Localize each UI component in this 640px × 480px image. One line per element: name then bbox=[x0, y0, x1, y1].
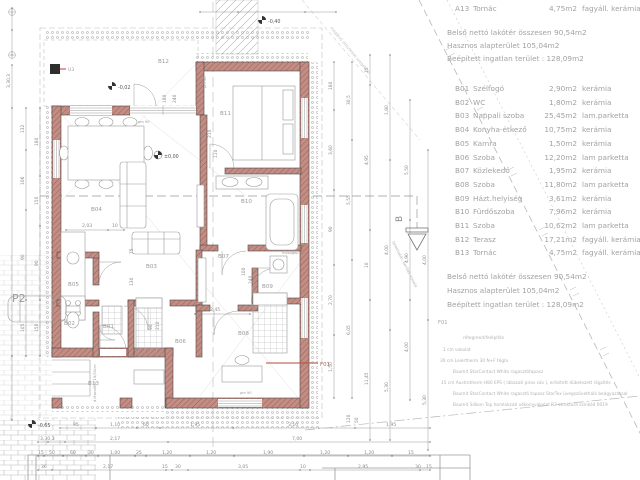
desk-b13 bbox=[134, 370, 164, 384]
svg-text:90: 90 bbox=[20, 254, 26, 260]
svg-text:1,80: 1,80 bbox=[384, 105, 390, 115]
svg-text:60: 60 bbox=[143, 422, 149, 428]
wall-spec-layer: 1 cm vakolat bbox=[443, 348, 471, 353]
svg-text:5,50: 5,50 bbox=[404, 165, 410, 175]
legend-row: B03Nappali szoba25,45m2lam.parketta bbox=[455, 111, 640, 120]
svg-text:105: 105 bbox=[20, 323, 26, 332]
svg-text:180: 180 bbox=[34, 137, 40, 146]
wall-spec-code: F01 bbox=[438, 320, 448, 326]
svg-text:180: 180 bbox=[162, 94, 168, 103]
parapet-label-3: pm 90 bbox=[240, 391, 252, 395]
svg-text:2,03: 2,03 bbox=[82, 223, 92, 229]
svg-text:4,95: 4,95 bbox=[364, 155, 370, 165]
svg-text:1,95: 1,95 bbox=[386, 422, 396, 428]
svg-text:15: 15 bbox=[162, 464, 168, 470]
wc-tank bbox=[66, 306, 80, 312]
legend-row: B06Szoba12,20m2lam parketta bbox=[455, 153, 640, 162]
svg-text:4,00: 4,00 bbox=[384, 245, 390, 255]
svg-text:75: 75 bbox=[129, 248, 135, 254]
room-label-b03: B03 bbox=[146, 264, 157, 270]
sofa-2 bbox=[132, 232, 180, 254]
hall-wardrobe bbox=[198, 258, 206, 302]
room-finish: fagyáll. kerámia bbox=[582, 4, 640, 13]
svg-text:130: 130 bbox=[129, 277, 135, 286]
svg-text:240: 240 bbox=[172, 94, 178, 103]
svg-text:3,30,3: 3,30,3 bbox=[6, 74, 12, 88]
parapet-label-2: pm 90 bbox=[203, 76, 207, 88]
svg-text:30: 30 bbox=[415, 464, 421, 470]
svg-text:210: 210 bbox=[207, 129, 213, 138]
svg-text:50: 50 bbox=[354, 417, 360, 423]
room-label-b08: B08 bbox=[238, 331, 249, 337]
parapet-label-1: pm 90 bbox=[138, 120, 150, 124]
svg-text:30,5: 30,5 bbox=[346, 95, 352, 105]
svg-text:106: 106 bbox=[20, 176, 26, 185]
level-zero: ±0,00 bbox=[164, 154, 179, 160]
svg-text:15: 15 bbox=[364, 67, 370, 73]
legend-row: B01Szélfogó2,90m2kerámia bbox=[455, 84, 640, 93]
washing-machine bbox=[270, 256, 287, 273]
washer-label: mosógép bbox=[282, 251, 299, 255]
room-name: Tornác bbox=[473, 4, 537, 13]
steps-label: 4 lépcsőfok 15/30cm bbox=[93, 364, 97, 402]
room-label-b12: B12 bbox=[158, 59, 169, 65]
room-label-b04: B04 bbox=[91, 207, 102, 213]
svg-text:4,90: 4,90 bbox=[404, 253, 410, 263]
sink-1 bbox=[222, 178, 238, 187]
wall-spec-layer: 15 cm Austrotherm H80 EPS ( lábazati pir… bbox=[441, 381, 611, 386]
level-porch: -0,65 bbox=[38, 423, 50, 429]
level-terrace: -0,02 bbox=[118, 85, 130, 91]
legend-row: B09Házt.helyiség3,61m2kerámia bbox=[455, 194, 640, 203]
room-label-b09: B09 bbox=[262, 284, 273, 290]
svg-text:5,55: 5,55 bbox=[346, 195, 352, 205]
svg-text:3,05: 3,05 bbox=[238, 464, 248, 470]
legend-row: B05Kamra1,50m2kerámia bbox=[455, 139, 640, 148]
room-label-b11: B11 bbox=[220, 111, 231, 117]
svg-text:10: 10 bbox=[112, 223, 118, 229]
svg-text:3,10: 3,10 bbox=[288, 422, 298, 428]
total-built: Beépített ingatlan terület : 128,09m2 bbox=[447, 54, 584, 63]
svg-text:150: 150 bbox=[34, 323, 40, 332]
svg-text:132: 132 bbox=[20, 124, 26, 133]
legend-row-a13: A13Tornác4,75m2fagyáll. kerámia bbox=[455, 4, 640, 13]
wall-spec-subtitle: rétegrend/felépítés bbox=[463, 336, 504, 341]
legend-row: B08Szoba11,80m2lam parketta bbox=[455, 180, 640, 189]
svg-text:7,00: 7,00 bbox=[292, 436, 302, 442]
total-net-2: Belső nettó lakótér összesen 90,54m2 bbox=[447, 272, 587, 281]
column-u3 bbox=[50, 64, 60, 74]
svg-text:90: 90 bbox=[148, 324, 154, 330]
svg-text:2,45: 2,45 bbox=[210, 307, 220, 313]
legend-row: B12Terasz17,21m2fagyáll. kerámia bbox=[455, 235, 640, 244]
total-useful-2: Hasznos alapterület 105,04m2 bbox=[447, 286, 559, 295]
level-path: -0,40 bbox=[268, 19, 280, 25]
legend-row: B07Közlekedő1,95m2kerámia bbox=[455, 166, 640, 175]
svg-text:1,95: 1,95 bbox=[190, 422, 200, 428]
svg-text:3,60: 3,60 bbox=[328, 145, 334, 155]
svg-text:11,45: 11,45 bbox=[364, 372, 370, 385]
svg-text:2,70: 2,70 bbox=[328, 295, 334, 305]
svg-text:90: 90 bbox=[199, 132, 205, 138]
legend-row: B04Konyha-étkező10,75m2kerámia bbox=[455, 125, 640, 134]
svg-text:2,17: 2,17 bbox=[110, 436, 120, 442]
room-code: A13 bbox=[455, 4, 473, 13]
svg-text:36: 36 bbox=[41, 464, 47, 470]
desk-b08 bbox=[222, 366, 262, 382]
sofa-1 bbox=[120, 162, 146, 228]
section-marker-b: B bbox=[395, 216, 428, 250]
svg-text:5,30: 5,30 bbox=[422, 395, 428, 405]
svg-text:150: 150 bbox=[34, 196, 40, 205]
svg-text:6,05: 6,05 bbox=[346, 325, 352, 335]
column-label: U3 bbox=[68, 67, 74, 73]
tv-cabinet bbox=[197, 185, 204, 227]
room-label-b02: B02 bbox=[64, 321, 75, 327]
svg-text:120: 120 bbox=[346, 414, 352, 423]
room-label-b01: B01 bbox=[103, 324, 114, 330]
total-net: Belső nettó lakótér összesen 90,54m2 bbox=[447, 28, 587, 37]
svg-text:10: 10 bbox=[300, 464, 306, 470]
legend-row: B02WC1,80m2kerámia bbox=[455, 98, 640, 107]
svg-text:90: 90 bbox=[34, 260, 40, 266]
svg-text:110: 110 bbox=[213, 149, 219, 158]
room-label-b07: B07 bbox=[218, 254, 229, 260]
room-label-b06: B06 bbox=[175, 339, 186, 345]
svg-text:240: 240 bbox=[248, 275, 254, 284]
parking-label: P2 bbox=[12, 292, 26, 305]
svg-text:210: 210 bbox=[155, 321, 161, 330]
svg-text:4,00: 4,00 bbox=[422, 255, 428, 265]
room-label-b10: B10 bbox=[241, 199, 252, 205]
svg-text:5,30: 5,30 bbox=[384, 382, 390, 392]
svg-text:3,30,3: 3,30,3 bbox=[40, 436, 55, 442]
legend-row: B13Tornác4,75m2fagyáll. kerámia bbox=[455, 248, 640, 257]
wall-spec-layer: Baumit StarContact White ragasztótapasz bbox=[453, 370, 543, 375]
walkway bbox=[216, 0, 258, 54]
legend-row: B11Szoba10,62m2lam parketta bbox=[455, 221, 640, 230]
total-built-2: Beépített ingatlan terület : 128,09m2 bbox=[447, 300, 584, 309]
sink-2 bbox=[246, 178, 262, 187]
wall-spec-layer: Baumit StarContact White ragasztó tapasz… bbox=[453, 392, 627, 397]
wall-type-label: F01 bbox=[320, 362, 330, 368]
wall-spec-layer: Baumit Silikon Top homlokzati vékonyvako… bbox=[453, 403, 608, 408]
kitchen-sink bbox=[67, 252, 79, 264]
svg-text:10: 10 bbox=[364, 262, 370, 268]
svg-text:2,95: 2,95 bbox=[358, 464, 368, 470]
svg-text:90: 90 bbox=[328, 226, 334, 232]
svg-text:100: 100 bbox=[241, 267, 247, 276]
legend-row: B10Fürdőszoba7,96m2kerámia bbox=[455, 207, 640, 216]
room-label-b05: B05 bbox=[68, 282, 79, 288]
wall-spec-layer: 30 cm Leiertherm 30 N+F tégla bbox=[440, 359, 508, 364]
section-letter: B bbox=[395, 216, 405, 222]
bathtub bbox=[266, 194, 298, 250]
total-useful: Hasznos alapterület 105,04m2 bbox=[447, 41, 559, 50]
floor-plan-sheet: 95 1,10 60 1,95 3,10 1,95 120 50 3,30,3 … bbox=[0, 0, 640, 480]
svg-text:4,00: 4,00 bbox=[404, 342, 410, 352]
svg-text:1,10: 1,10 bbox=[110, 422, 120, 428]
svg-text:15: 15 bbox=[426, 464, 432, 470]
svg-text:2,17: 2,17 bbox=[103, 464, 113, 470]
porch-steps bbox=[52, 360, 90, 396]
svg-text:95: 95 bbox=[73, 422, 79, 428]
svg-text:180: 180 bbox=[328, 81, 334, 90]
svg-text:30: 30 bbox=[175, 464, 181, 470]
room-area: 4,75m2 bbox=[537, 4, 577, 13]
